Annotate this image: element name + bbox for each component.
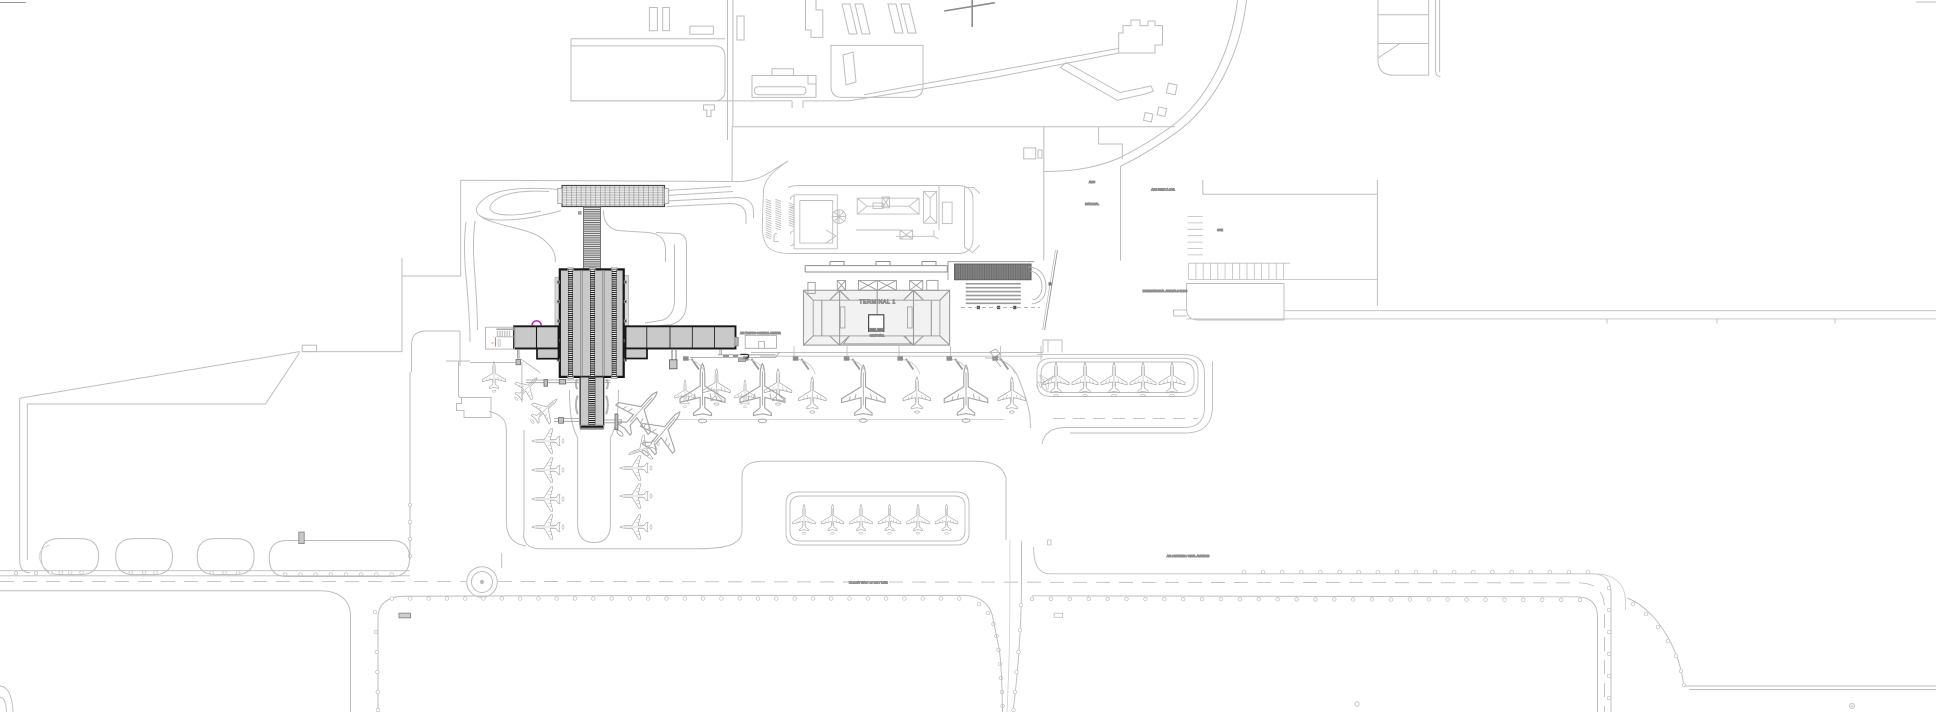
svg-text:TAXIWAY EAST OF RWY LINE: TAXIWAY EAST OF RWY LINE: [849, 581, 888, 585]
svg-text:AIR TRAFFIC CONTROL CENTER: AIR TRAFFIC CONTROL CENTER: [740, 331, 781, 335]
svg-text:GTE: GTE: [1217, 228, 1223, 232]
svg-text:NATIONAL: NATIONAL: [1085, 202, 1099, 206]
svg-text:INTERNATIONAL ARRIVALS BLDG: INTERNATIONAL ARRIVALS BLDG: [1143, 289, 1188, 293]
svg-text:AIR CHARTER / GEN'L AVIATION: AIR CHARTER / GEN'L AVIATION: [1167, 554, 1210, 558]
svg-text:AVIS: AVIS: [1089, 180, 1095, 184]
svg-text:AVIS RENT A CAR: AVIS RENT A CAR: [1151, 188, 1175, 192]
svg-text:GREAT HALL: GREAT HALL: [870, 335, 885, 338]
svg-text:TERMINAL 1: TERMINAL 1: [859, 300, 896, 306]
